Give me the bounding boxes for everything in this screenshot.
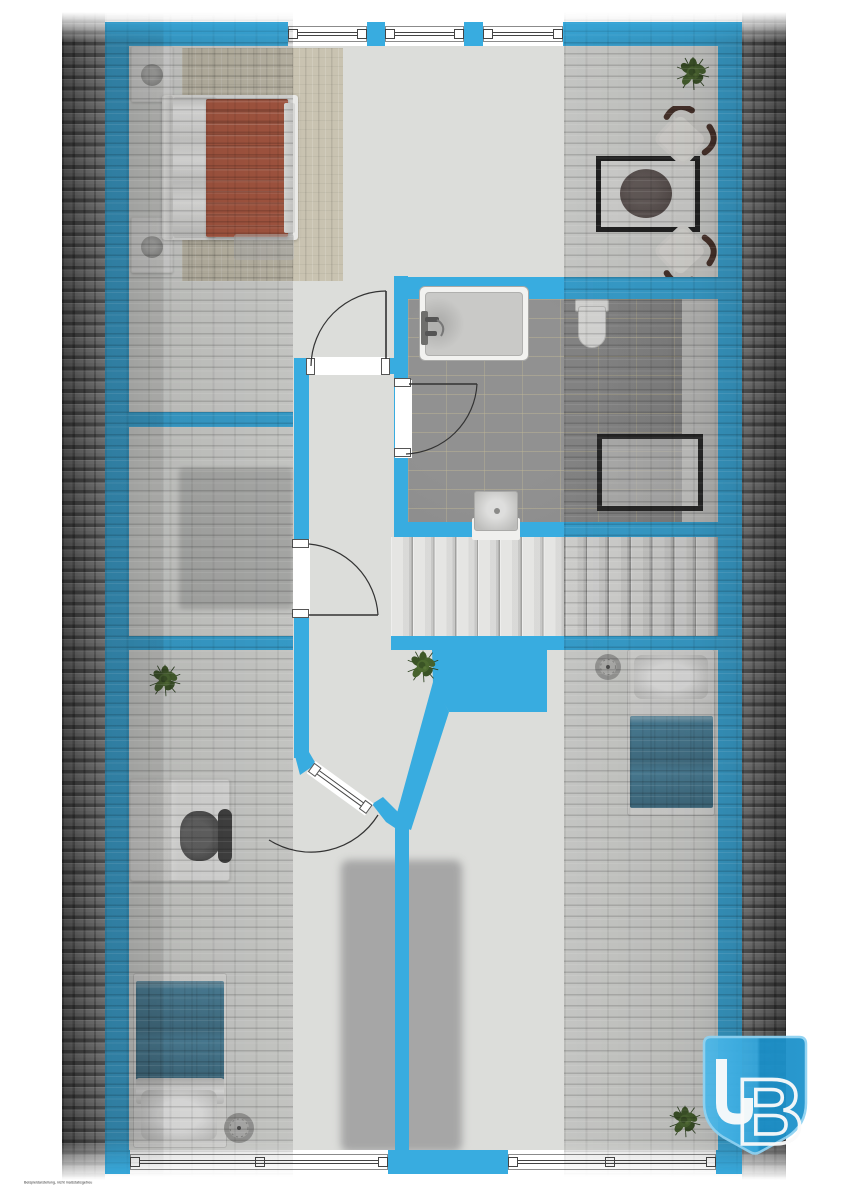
svg-text:B: B (736, 1059, 804, 1158)
